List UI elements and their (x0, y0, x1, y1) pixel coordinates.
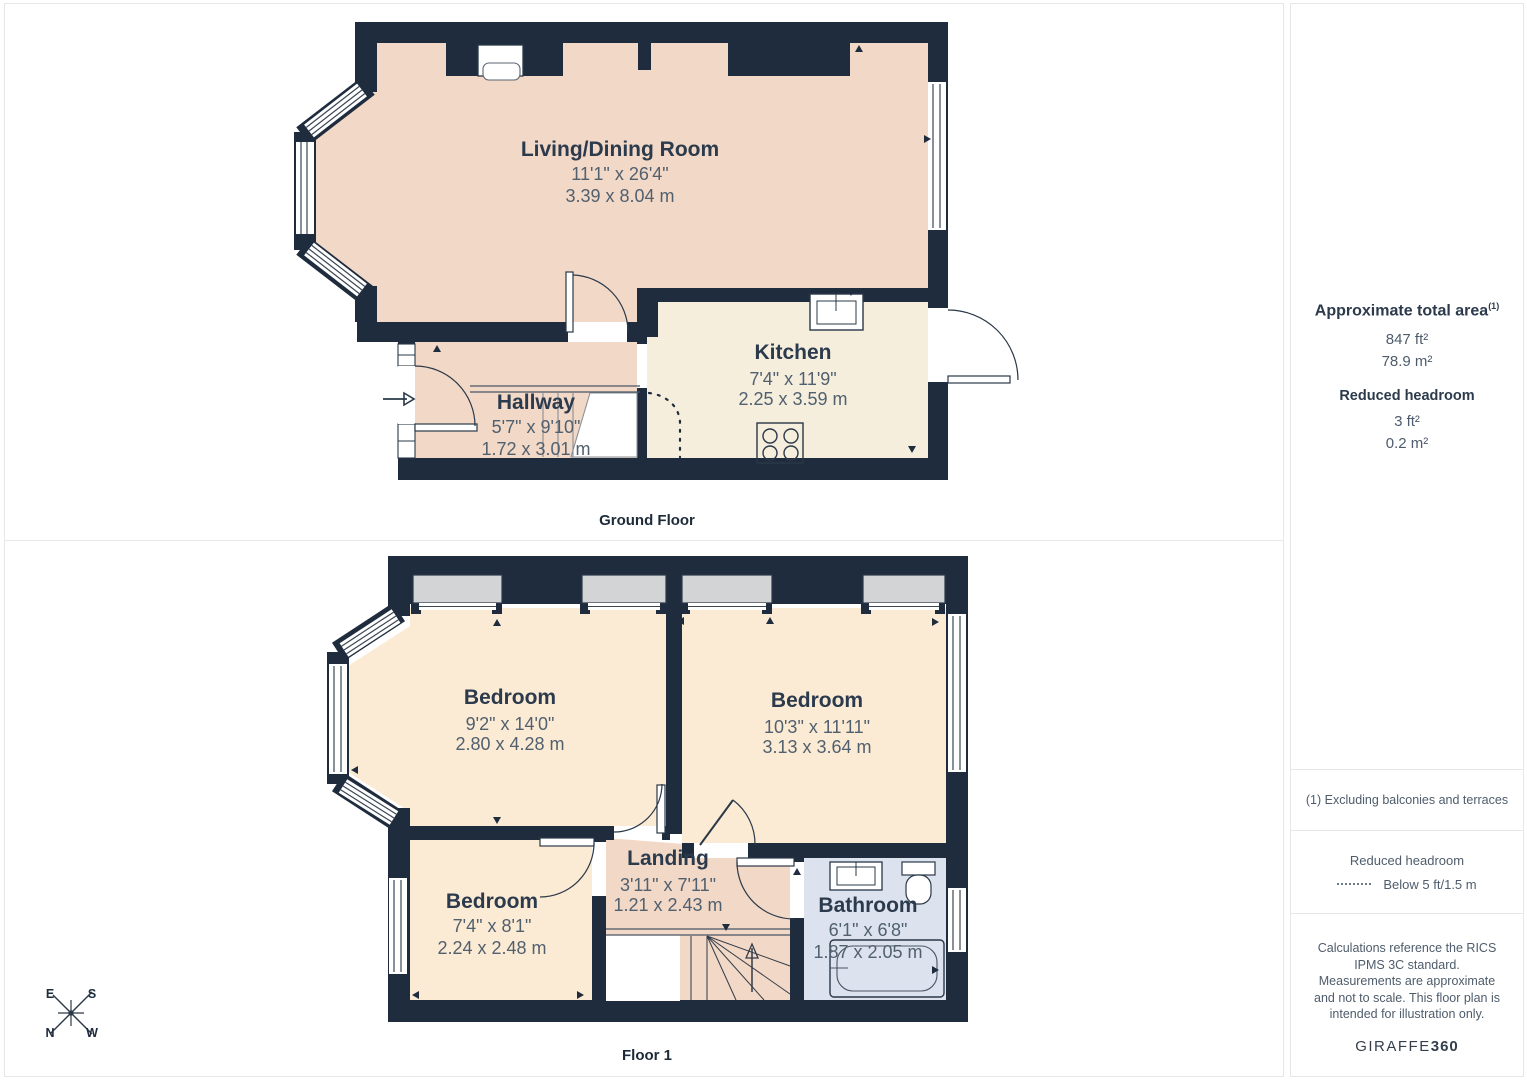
landing-metric: 1.21 x 2.43 m (613, 895, 722, 915)
kitchen-ext-door-opening (928, 308, 948, 382)
bathroom-label: Bathroom (818, 894, 917, 917)
reduced-headroom-ft: 3 ft² (1291, 411, 1523, 433)
reduced-headroom-m: 0.2 m² (1291, 433, 1523, 455)
legend-value: Below 5 ft/1.5 m (1383, 877, 1476, 892)
total-area-m: 78.9 m² (1291, 351, 1523, 373)
bathroom-imperial: 6'1" x 6'8" (829, 920, 908, 940)
hallway-label: Hallway (497, 391, 576, 414)
giraffe360-logo: GIRAFFE360 (1291, 1038, 1523, 1055)
front-door-leaf (415, 424, 477, 431)
kitchen-imperial: 7'4" x 11'9" (749, 369, 836, 389)
ground-floor-caption: Ground Floor (599, 512, 695, 529)
hallway-imperial: 5'7" x 9'10" (492, 417, 581, 437)
ground-floor-plan: Living/Dining Room 11'1" x 26'4" 3.39 x … (294, 22, 1018, 529)
kitchen-ext-door-leaf (948, 376, 1010, 383)
legend-card: Reduced headroom Below 5 ft/1.5 m (1291, 830, 1523, 913)
hallway-metric: 1.72 x 3.01 m (481, 439, 590, 459)
window-seat (483, 63, 520, 80)
bedroom-bl-door-leaf (540, 838, 594, 846)
right-window (928, 82, 946, 230)
total-area-ft: 847 ft² (1291, 329, 1523, 351)
landing-label: Landing (627, 847, 709, 870)
compass-icon: E S N W (45, 987, 98, 1040)
kitchen-doorway (637, 344, 647, 388)
disclaimer-card: Calculations reference the RICS IPMS 3C … (1291, 913, 1523, 1077)
compass-s: S (88, 987, 96, 1001)
footnote-card: (1) Excluding balconies and terraces (1291, 769, 1523, 830)
disclaimer-text: Calculations reference the RICS IPMS 3C … (1312, 940, 1502, 1023)
footnote-text: (1) Excluding balconies and terraces (1306, 793, 1508, 807)
bedroom-bl-metric: 2.24 x 2.48 m (437, 938, 546, 958)
bedroom-bl-imperial: 7'4" x 8'1" (453, 916, 532, 936)
living-room-imperial: 11'1" x 26'4" (571, 164, 668, 184)
total-area-title: Approximate total area(1) (1291, 301, 1523, 320)
bathroom-window (948, 888, 966, 952)
bedroom-bl-label: Bedroom (446, 890, 538, 913)
legend-row: Below 5 ft/1.5 m (1337, 877, 1476, 892)
bedroom-tr-metric: 3.13 x 3.64 m (762, 737, 871, 757)
bedroom-tl-label: Bedroom (464, 686, 556, 709)
compass-e: E (46, 987, 54, 1001)
floor-1-caption: Floor 1 (622, 1047, 672, 1064)
compass-w: W (86, 1026, 98, 1040)
bedroom-tr-window (948, 614, 966, 772)
living-room-metric: 3.39 x 8.04 m (565, 186, 674, 206)
bedroom-bl-window (389, 878, 407, 974)
bathroom-sink (830, 862, 882, 890)
bedroom-tr-label: Bedroom (771, 689, 863, 712)
bedroom-tr-imperial: 10'3" x 11'11" (764, 717, 870, 737)
area-summary-card: Approximate total area(1) 847 ft² 78.9 m… (1291, 4, 1523, 769)
bathroom-metric: 1.87 x 2.05 m (813, 942, 922, 962)
info-sidebar: Approximate total area(1) 847 ft² 78.9 m… (1290, 3, 1524, 1077)
living-room-label: Living/Dining Room (521, 138, 719, 161)
landing-imperial: 3'11" x 7'11" (620, 875, 716, 895)
floor-plan-canvas: Living/Dining Room 11'1" x 26'4" 3.39 x … (0, 0, 1287, 1080)
kitchen-sink (810, 294, 863, 330)
bedroom-tl-imperial: 9'2" x 14'0" (466, 714, 555, 734)
bedroom-tl-metric: 2.80 x 4.28 m (455, 734, 564, 754)
footnote-marker: (1) (1488, 301, 1499, 311)
legend-title: Reduced headroom (1350, 853, 1464, 868)
dotted-line-icon (1337, 883, 1371, 885)
kitchen-label: Kitchen (754, 341, 831, 364)
floor-1-plan: Bedroom 9'2" x 14'0" 2.80 x 4.28 m Bedro… (327, 556, 968, 1064)
kitchen-metric: 2.25 x 3.59 m (738, 389, 847, 409)
bathroom-door-leaf (737, 858, 794, 866)
kitchen-ext-door-arc (948, 310, 1018, 380)
compass-n: N (45, 1026, 54, 1040)
reduced-headroom-title: Reduced headroom (1291, 388, 1523, 404)
living-door-leaf (566, 272, 573, 332)
